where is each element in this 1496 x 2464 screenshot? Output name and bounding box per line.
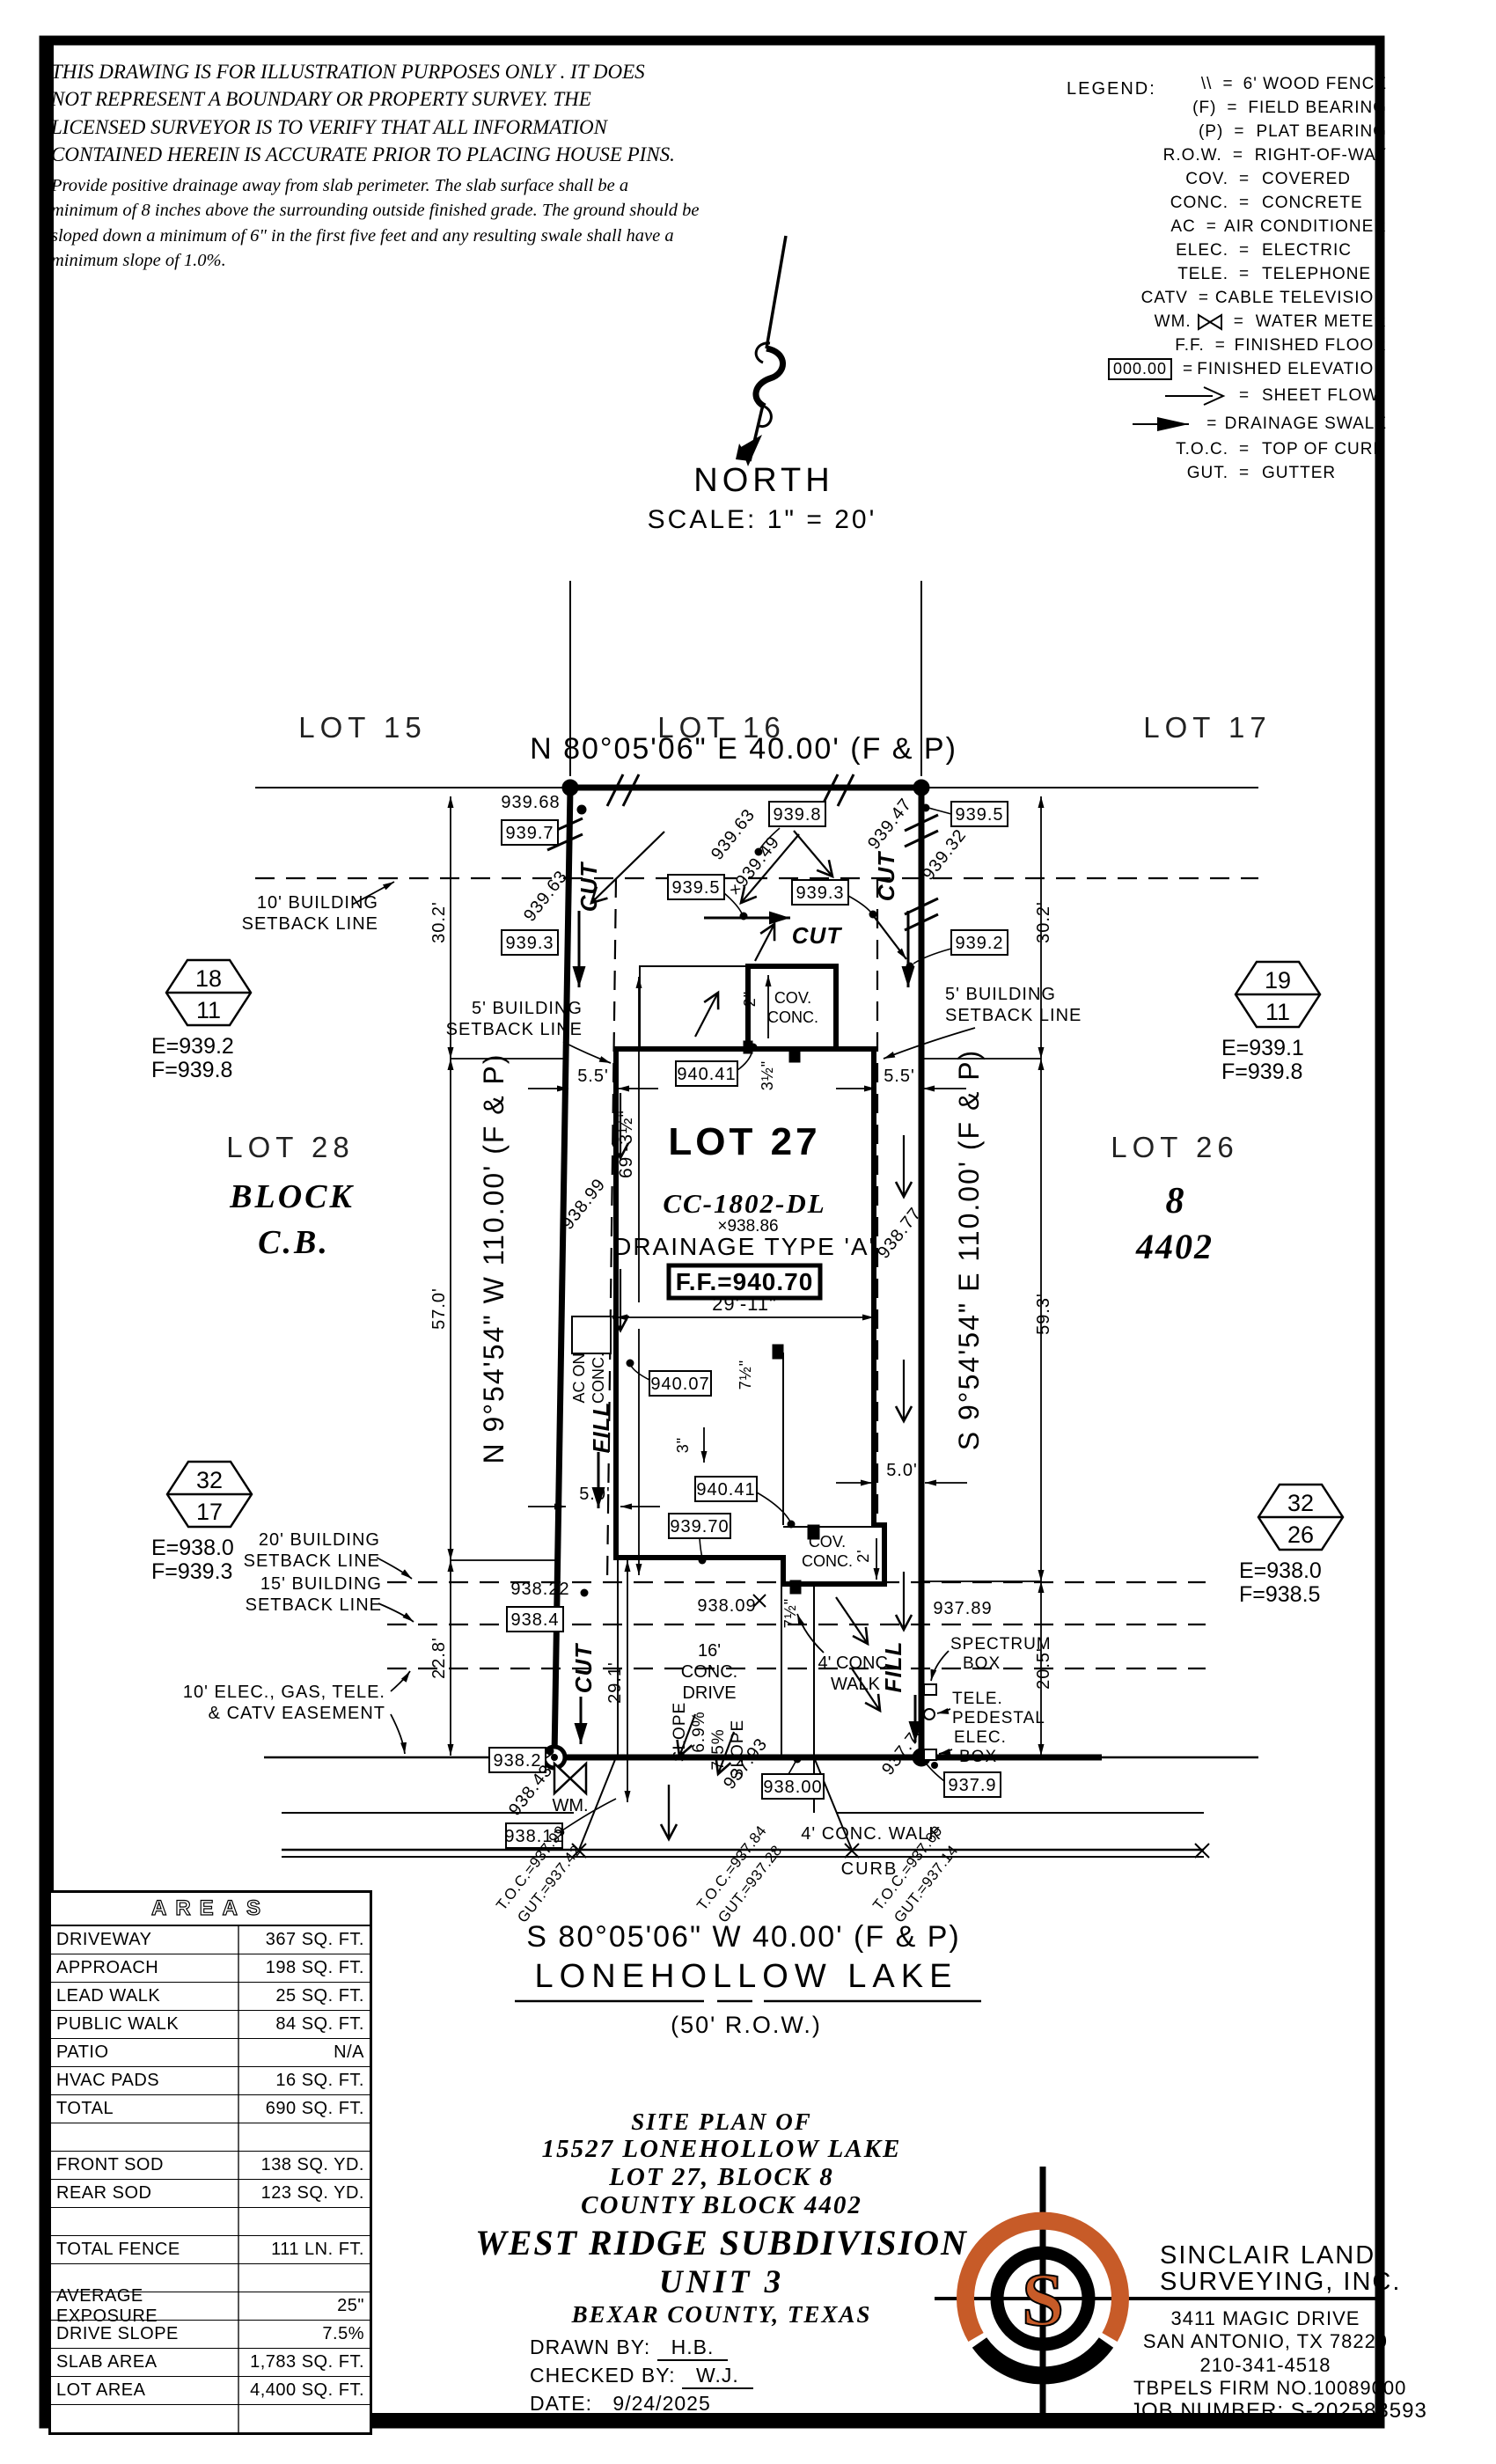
drainage-note-line: minimum slope of 1.0%. — [51, 248, 699, 273]
svg-text:8: 8 — [1166, 1181, 1184, 1221]
svg-text:DRAINAGE TYPE 'A': DRAINAGE TYPE 'A' — [613, 1233, 876, 1260]
job-number: JOB NUMBER: S-202583593 — [1130, 2399, 1427, 2424]
svg-text:32: 32 — [1287, 1490, 1314, 1516]
svg-text:938.77: 938.77 — [874, 1204, 926, 1262]
svg-text:& CATV EASEMENT: & CATV EASEMENT — [209, 1704, 385, 1723]
table-row: LEAD WALK25 SQ. FT. — [51, 1983, 370, 2011]
svg-text:SPECTRUM: SPECTRUM — [950, 1635, 1052, 1654]
svg-text:LONEHOLLOW LAKE: LONEHOLLOW LAKE — [535, 1958, 958, 1995]
table-row — [51, 2123, 370, 2152]
table-row: REAR SOD123 SQ. YD. — [51, 2180, 370, 2208]
svg-text:11: 11 — [1265, 999, 1290, 1025]
subdivision-name: WEST RIDGE SUBDIVISION — [449, 2222, 994, 2263]
utility-fixtures — [924, 1684, 936, 1760]
svg-text:E=938.0: E=938.0 — [151, 1536, 234, 1560]
svg-text:19: 19 — [1265, 967, 1291, 994]
svg-text:CUT: CUT — [792, 922, 843, 949]
svg-text:(50' R.O.W.): (50' R.O.W.) — [671, 2012, 822, 2038]
drainage-note-line: Provide positive drainage away from slab… — [51, 173, 699, 198]
table-row: DRIVE SLOPE7.5% — [51, 2321, 370, 2349]
table-row: AVERAGE EXPOSURE25" — [51, 2292, 370, 2321]
svg-text:30.2': 30.2' — [429, 901, 449, 943]
drawn-by-label: DRAWN BY: — [530, 2336, 650, 2358]
svg-text:SETBACK LINE: SETBACK LINE — [446, 1020, 583, 1039]
svg-text:E=938.0: E=938.0 — [1239, 1558, 1322, 1583]
table-row — [51, 2405, 370, 2432]
svg-text:BOX: BOX — [963, 1654, 1001, 1673]
svg-text:LOT 27: LOT 27 — [668, 1120, 820, 1163]
table-row: APPROACH198 SQ. FT. — [51, 1954, 370, 1983]
svg-text:29.1': 29.1' — [605, 1661, 625, 1704]
svg-text:7.5%: 7.5% — [709, 1728, 728, 1770]
wood-fence-symbol: \\ — [1079, 75, 1222, 94]
svg-text:SETBACK LINE: SETBACK LINE — [244, 1551, 380, 1571]
svg-text:SETBACK LINE: SETBACK LINE — [945, 1006, 1082, 1025]
drawn-by-value: H.B. — [657, 2336, 729, 2361]
svg-text:F=939.3: F=939.3 — [151, 1559, 232, 1584]
ac-label-1: AC ON — [570, 1353, 588, 1403]
svg-text:10' ELEC., GAS, TELE.: 10' ELEC., GAS, TELE. — [183, 1683, 385, 1702]
table-row: FRONT SOD138 SQ. YD. — [51, 2152, 370, 2180]
svg-text:CUT: CUT — [873, 851, 899, 902]
svg-text:939.70: 939.70 — [670, 1517, 729, 1536]
title-block: SITE PLAN OF 15527 LONEHOLLOW LAKE LOT 2… — [449, 2108, 994, 2420]
svg-text:939.68: 939.68 — [501, 793, 560, 812]
svg-text:BLOCK: BLOCK — [229, 1178, 355, 1215]
svg-text:2': 2' — [854, 1549, 872, 1562]
firm-name: SINCLAIR LAND SURVEYING, INC. — [1160, 2242, 1401, 2296]
svg-text:32: 32 — [196, 1467, 223, 1493]
title-line: SITE PLAN OF — [449, 2108, 994, 2136]
svg-text:938.2: 938.2 — [493, 1751, 541, 1771]
svg-text:CUT: CUT — [570, 1643, 597, 1694]
svg-text:4402: 4402 — [1135, 1227, 1214, 1266]
table-row: SLAB AREA1,783 SQ. FT. — [51, 2349, 370, 2377]
svg-text:938.4: 938.4 — [510, 1610, 559, 1630]
scale-label: SCALE: 1" = 20' — [648, 505, 877, 534]
table-row: TOTAL690 SQ. FT. — [51, 2095, 370, 2123]
water-meter-icon — [554, 1764, 586, 1793]
svg-text:S 9°54'54" E 110.00' (F & P): S 9°54'54" E 110.00' (F & P) — [953, 1049, 985, 1450]
firm-address: 3411 MAGIC DRIVE SAN ANTONIO, TX 78229 2… — [1133, 2307, 1397, 2401]
title-line: COUNTY BLOCK 4402 — [449, 2192, 994, 2220]
svg-text:59.3': 59.3' — [1034, 1293, 1053, 1335]
areas-table-title: AREAS — [51, 1893, 370, 1926]
svg-text:C.B.: C.B. — [258, 1224, 330, 1261]
svg-text:7½": 7½" — [781, 1598, 799, 1628]
date-label: DATE: — [530, 2392, 592, 2415]
disclaimer-line: NOT REPRESENT A BOUNDARY OR PROPERTY SUR… — [51, 85, 699, 113]
svg-text:WALK: WALK — [831, 1675, 881, 1694]
disclaimer-line: CONTAINED HEREIN IS ACCURATE PRIOR TO PL… — [51, 141, 699, 168]
svg-text:939.8: 939.8 — [773, 805, 821, 825]
svg-text:6.9%: 6.9% — [690, 1711, 708, 1752]
svg-text:F=939.8: F=939.8 — [151, 1058, 232, 1082]
svg-text:937.9: 937.9 — [948, 1776, 996, 1795]
svg-text:ELEC.: ELEC. — [954, 1728, 1007, 1747]
svg-text:CC-1802-DL: CC-1802-DL — [663, 1188, 825, 1219]
date-value: 9/24/2025 — [598, 2392, 724, 2417]
svg-text:5' BUILDING: 5' BUILDING — [472, 999, 583, 1018]
title-line: LOT 27, BLOCK 8 — [449, 2164, 994, 2192]
disclaimer-note: THIS DRAWING IS FOR ILLUSTRATION PURPOSE… — [51, 58, 699, 273]
svg-text:SETBACK LINE: SETBACK LINE — [242, 914, 378, 934]
svg-text:939.7: 939.7 — [505, 824, 554, 843]
checked-by-label: CHECKED BY: — [530, 2364, 676, 2387]
table-row: LOT AREA4,400 SQ. FT. — [51, 2377, 370, 2405]
table-row: HVAC PADS16 SQ. FT. — [51, 2067, 370, 2095]
areas-table: AREAS DRIVEWAY367 SQ. FT. APPROACH198 SQ… — [48, 1890, 372, 2435]
svg-text:7½": 7½" — [737, 1360, 754, 1390]
checked-by-value: W.J. — [682, 2364, 753, 2389]
svg-text:LOT 26: LOT 26 — [1111, 1131, 1238, 1163]
svg-text:5.0': 5.0' — [579, 1485, 611, 1504]
svg-text:FILL: FILL — [588, 1402, 614, 1454]
svg-text:DRIVE: DRIVE — [682, 1683, 736, 1703]
svg-text:CONC.: CONC. — [767, 1008, 818, 1026]
svg-text:E=939.2: E=939.2 — [151, 1034, 234, 1059]
monument-18-11: 18 11 E=939.2 F=939.8 — [151, 960, 251, 1082]
svg-text:LOT 17: LOT 17 — [1143, 711, 1271, 744]
monument-32-26: 32 26 E=938.0 F=938.5 — [1239, 1485, 1343, 1607]
svg-text:CUT: CUT — [576, 862, 602, 913]
site-plan-sheet: NORTH SCALE: 1" = 20' — [0, 0, 1496, 2464]
svg-text:939.5: 939.5 — [955, 805, 1003, 825]
svg-text:CONC.: CONC. — [681, 1662, 737, 1682]
svg-text:SLOPE: SLOPE — [729, 1720, 747, 1779]
svg-text:18: 18 — [195, 965, 222, 992]
svg-text:939.5: 939.5 — [671, 878, 720, 898]
svg-text:S: S — [1022, 2257, 1064, 2342]
svg-text:SLOPE: SLOPE — [671, 1702, 689, 1762]
svg-text:E=939.1: E=939.1 — [1221, 1036, 1304, 1060]
svg-text:BOX: BOX — [959, 1748, 997, 1766]
water-meter-legend-icon — [1197, 313, 1223, 331]
svg-text:5.5': 5.5' — [577, 1067, 609, 1086]
svg-text:2": 2" — [741, 991, 759, 1007]
svg-text:940.41: 940.41 — [677, 1065, 736, 1084]
svg-text:COV.: COV. — [809, 1533, 846, 1551]
legend-desc: 6' WOOD FENCE — [1243, 75, 1387, 94]
svg-text:TELE.: TELE. — [952, 1690, 1003, 1708]
svg-text:5' BUILDING: 5' BUILDING — [945, 985, 1056, 1004]
ac-label-2: CONC. — [590, 1353, 607, 1404]
sheet-flow-legend-icon — [1163, 385, 1228, 407]
svg-text:26: 26 — [1287, 1522, 1314, 1548]
svg-text:939.63: 939.63 — [520, 867, 572, 925]
svg-text:939.3: 939.3 — [796, 884, 844, 903]
svg-text:939.32: 939.32 — [919, 825, 971, 884]
svg-text:940.07: 940.07 — [650, 1375, 709, 1394]
table-row: DRIVEWAY367 SQ. FT. — [51, 1926, 370, 1954]
svg-text:5.5': 5.5' — [884, 1067, 915, 1086]
north-arrow-icon — [736, 236, 786, 466]
svg-text:939.2: 939.2 — [955, 934, 1003, 953]
svg-text:N 80°05'06" E 40.00' (F & P): N 80°05'06" E 40.00' (F & P) — [530, 732, 957, 766]
svg-text:LOT 15: LOT 15 — [298, 711, 426, 744]
svg-text:F.F.=940.70: F.F.=940.70 — [676, 1268, 814, 1295]
svg-text:11: 11 — [196, 997, 221, 1023]
svg-text:CONC.: CONC. — [802, 1552, 853, 1570]
svg-text:F=938.5: F=938.5 — [1239, 1582, 1320, 1607]
svg-text:N 9°54'54" W 110.00' (F & P): N 9°54'54" W 110.00' (F & P) — [478, 1052, 510, 1463]
svg-text:30.2': 30.2' — [1034, 901, 1053, 943]
svg-text:S 80°05'06" W 40.00' (F & P): S 80°05'06" W 40.00' (F & P) — [526, 1920, 960, 1954]
svg-text:3½": 3½" — [759, 1060, 776, 1090]
finished-elevation-box: 000.00 — [1108, 358, 1172, 380]
svg-text:938.09: 938.09 — [697, 1596, 756, 1616]
svg-text:10' BUILDING: 10' BUILDING — [257, 893, 378, 913]
svg-text:CURB: CURB — [841, 1859, 898, 1879]
table-row: TOTAL FENCE111 LN. FT. — [51, 2236, 370, 2264]
svg-text:57.0': 57.0' — [429, 1287, 449, 1330]
ac-unit — [572, 1316, 611, 1353]
svg-text:20.5': 20.5' — [1034, 1647, 1053, 1690]
disclaimer-line: LICENSED SURVEYOR IS TO VERIFY THAT ALL … — [51, 114, 699, 141]
svg-text:938.22: 938.22 — [510, 1580, 569, 1599]
svg-text:COV.: COV. — [774, 989, 811, 1007]
table-row: PUBLIC WALK84 SQ. FT. — [51, 2011, 370, 2039]
table-row: PATION/A — [51, 2039, 370, 2067]
wm-label: WM. — [552, 1796, 588, 1815]
svg-text:PEDESTAL: PEDESTAL — [952, 1709, 1045, 1727]
svg-text:20' BUILDING: 20' BUILDING — [259, 1530, 380, 1550]
svg-text:16': 16' — [698, 1641, 721, 1661]
svg-text:939.3: 939.3 — [505, 934, 554, 953]
svg-text:17: 17 — [196, 1499, 223, 1525]
svg-text:LOT 28: LOT 28 — [226, 1131, 354, 1163]
title-line: 15527 LONEHOLLOW LAKE — [449, 2136, 994, 2164]
svg-text:940.41: 940.41 — [696, 1480, 755, 1500]
north-label: NORTH — [693, 462, 833, 499]
monument-32-17: 32 17 E=938.0 F=939.3 — [151, 1462, 252, 1584]
unit-line: UNIT 3 — [449, 2263, 994, 2301]
svg-text:SETBACK LINE: SETBACK LINE — [246, 1595, 382, 1615]
drainage-swale-legend-icon — [1131, 415, 1196, 433]
svg-text:5.0': 5.0' — [886, 1461, 918, 1480]
disclaimer-line: THIS DRAWING IS FOR ILLUSTRATION PURPOSE… — [51, 58, 699, 85]
svg-text:3": 3" — [674, 1437, 692, 1453]
svg-text:15' BUILDING: 15' BUILDING — [260, 1574, 382, 1594]
monument-19-11: 19 11 E=939.1 F=939.8 — [1221, 962, 1320, 1084]
svg-text:22.8': 22.8' — [429, 1637, 449, 1679]
drainage-note-line: minimum of 8 inches above the surroundin… — [51, 198, 699, 223]
svg-text:937.89: 937.89 — [933, 1599, 992, 1618]
svg-text:69'-3½": 69'-3½" — [616, 1110, 636, 1178]
drainage-note-line: sloped down a minimum of 6" in the first… — [51, 224, 699, 248]
county-line: BEXAR COUNTY, TEXAS — [449, 2301, 994, 2328]
table-row — [51, 2208, 370, 2236]
slope-labels: SLOPE 6.9% 7.5% SLOPE — [671, 1702, 747, 1779]
svg-text:F=939.8: F=939.8 — [1221, 1060, 1302, 1084]
legend: \\=6' WOOD FENCE (F)=FIELD BEARING (P)=P… — [1079, 72, 1387, 485]
svg-text:FILL: FILL — [880, 1641, 906, 1693]
svg-text:938.00: 938.00 — [763, 1778, 822, 1797]
